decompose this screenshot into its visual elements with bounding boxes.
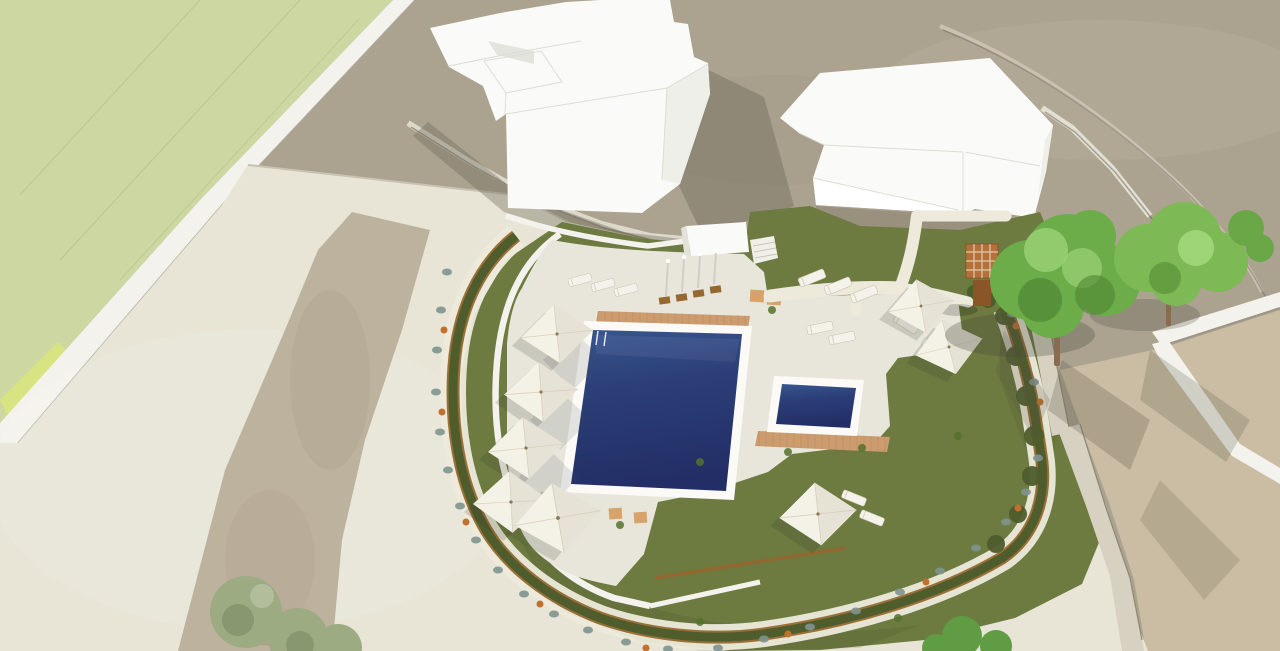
flower-pot — [439, 409, 446, 416]
lawn-tuft — [768, 306, 776, 314]
flower — [471, 537, 481, 544]
flower — [805, 624, 815, 631]
flower — [583, 627, 593, 634]
flower — [435, 429, 445, 436]
deck-mat — [609, 508, 623, 520]
shower-head — [714, 249, 718, 253]
canopy-highlight — [1024, 228, 1068, 272]
flower — [519, 591, 529, 598]
flower — [1001, 519, 1011, 526]
flower-pot — [537, 601, 544, 608]
flower — [431, 389, 441, 396]
gravel-mottle — [290, 290, 370, 470]
bush — [1246, 234, 1274, 262]
flower — [971, 545, 981, 552]
olive-shade — [222, 604, 254, 636]
canopy-shade — [1018, 278, 1062, 322]
flower — [443, 467, 453, 474]
lawn-tuft — [894, 614, 902, 622]
flower — [895, 589, 905, 596]
shower-head — [698, 252, 702, 256]
lawn-tuft — [858, 444, 866, 452]
flower — [549, 611, 559, 618]
canopy-shade — [1149, 262, 1181, 294]
flower — [432, 347, 442, 354]
flower — [851, 608, 861, 615]
shower-head — [682, 255, 686, 259]
deck-mat — [750, 290, 765, 303]
flower — [436, 307, 446, 314]
hedge-bush — [987, 535, 1005, 553]
olive-highlight — [250, 584, 274, 608]
deck-mat — [634, 512, 648, 524]
lawn-tuft — [616, 521, 624, 529]
canopy-highlight — [1178, 230, 1214, 266]
render-viewport — [0, 0, 1280, 651]
shower-head — [666, 259, 670, 263]
flower-pot — [785, 631, 792, 638]
lawn-tuft — [696, 458, 704, 466]
flower — [1021, 489, 1031, 496]
flower — [621, 639, 631, 646]
lawn-tuft — [784, 448, 792, 456]
hedge-bush — [1022, 466, 1042, 486]
flower-pot — [441, 327, 448, 334]
flower — [759, 636, 769, 643]
flower — [455, 503, 465, 510]
flower — [442, 269, 452, 276]
flower-pot — [1015, 505, 1022, 512]
flower — [935, 568, 945, 575]
canopy-shade — [1075, 275, 1115, 315]
pergola-planter — [973, 280, 991, 306]
flower-pot — [923, 579, 930, 586]
aerial-render — [0, 0, 1280, 651]
flower — [1033, 455, 1043, 462]
flower — [493, 567, 503, 574]
kids-pool-water — [776, 384, 856, 428]
lawn-tuft — [954, 432, 962, 440]
lawn-tuft — [696, 618, 704, 626]
flower-pot — [463, 519, 470, 526]
